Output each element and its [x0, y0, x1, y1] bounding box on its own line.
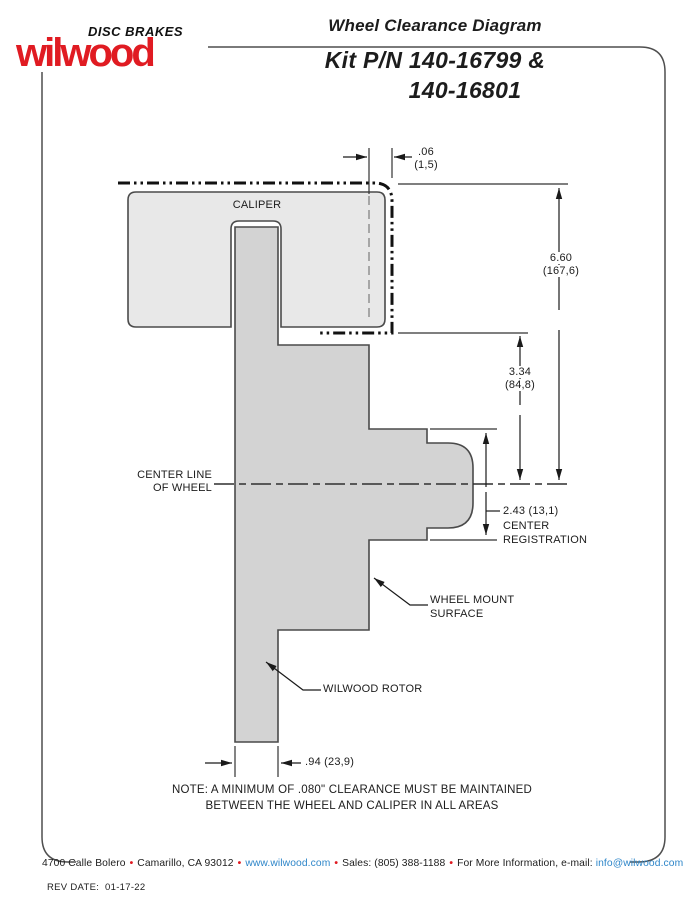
dim-wheel-depth-in: 6.60: [548, 252, 574, 264]
wilwood-logo: DISC BRAKES wilwood: [16, 24, 211, 74]
footer-email-link[interactable]: info@wilwood.com: [596, 858, 684, 869]
dim-mount-center-in: 3.34: [507, 366, 533, 378]
dim-mount-center-mm: (84,8): [503, 379, 537, 391]
footer-contact-line: 4700 Calle Bolero•Camarillo, CA 93012•ww…: [42, 857, 665, 870]
diagram-canvas: [0, 0, 700, 906]
caliper-label: CALIPER: [217, 199, 297, 212]
centerline-label: CENTER LINE OF WHEEL: [118, 469, 212, 495]
kit-number-line2: 140-16801: [310, 84, 620, 97]
rev-date: REV DATE: 01-17-22: [47, 881, 145, 894]
clearance-note: NOTE: A MINIMUM OF .080" CLEARANCE MUST …: [128, 783, 576, 814]
centerline-label-line1: CENTER LINE: [118, 469, 212, 482]
dim-clearance-mm: (1,5): [405, 159, 447, 172]
rotor-label: WILWOOD ROTOR: [323, 683, 422, 696]
dim-rotor-width-text: .94 (23,9): [305, 756, 354, 769]
dim-center-registration-l1: CENTER: [503, 519, 618, 534]
dim-mount-center-text: 3.34 (84,8): [492, 366, 548, 392]
footer-bullet: •: [130, 858, 134, 869]
footer-bullet: •: [238, 858, 242, 869]
wilwood-wordmark: wilwood: [16, 33, 153, 73]
dim-clearance-text: .06 (1,5): [405, 146, 447, 172]
dim-center-registration-l2: REGISTRATION: [503, 533, 618, 548]
footer-city: Camarillo, CA 93012: [137, 858, 233, 869]
wheel-clearance-sheet: DISC BRAKES wilwood Wheel Clearance Diag…: [0, 0, 700, 906]
page-title: Wheel Clearance Diagram: [240, 19, 630, 32]
footer-sales-phone: Sales: (805) 388-1188: [342, 858, 445, 869]
footer-info-text: For More Information, e-mail:: [457, 858, 593, 869]
footer-bullet: •: [449, 858, 453, 869]
dim-center-registration-text: 2.43 (13,1) CENTER REGISTRATION: [503, 504, 618, 548]
dim-wheel-depth-mm: (167,6): [541, 265, 581, 277]
wheel-mount-label: WHEEL MOUNT SURFACE: [430, 593, 545, 621]
frame-border-left: [42, 72, 76, 862]
dim-center-registration-value: 2.43 (13,1): [503, 504, 618, 519]
clearance-note-line1: NOTE: A MINIMUM OF .080" CLEARANCE MUST …: [128, 783, 576, 799]
wheel-mount-label-line2: SURFACE: [430, 607, 545, 621]
centerline-label-line2: OF WHEEL: [118, 482, 212, 495]
dim-clearance-in: .06: [405, 146, 447, 159]
clearance-note-line2: BETWEEN THE WHEEL AND CALIPER IN ALL ARE…: [128, 799, 576, 815]
footer-address: 4700 Calle Bolero: [42, 858, 126, 869]
footer-website-link[interactable]: www.wilwood.com: [245, 858, 330, 869]
rev-date-value: 01-17-22: [105, 882, 145, 893]
rev-date-label: REV DATE:: [47, 882, 99, 893]
wheel-mount-label-line1: WHEEL MOUNT: [430, 593, 545, 607]
dim-wheel-depth-text: 6.60 (167,6): [533, 252, 589, 278]
wheel-mount-leader: [374, 578, 428, 605]
kit-number-line1: Kit P/N 140-16799 &: [240, 54, 630, 67]
footer-bullet: •: [334, 858, 338, 869]
